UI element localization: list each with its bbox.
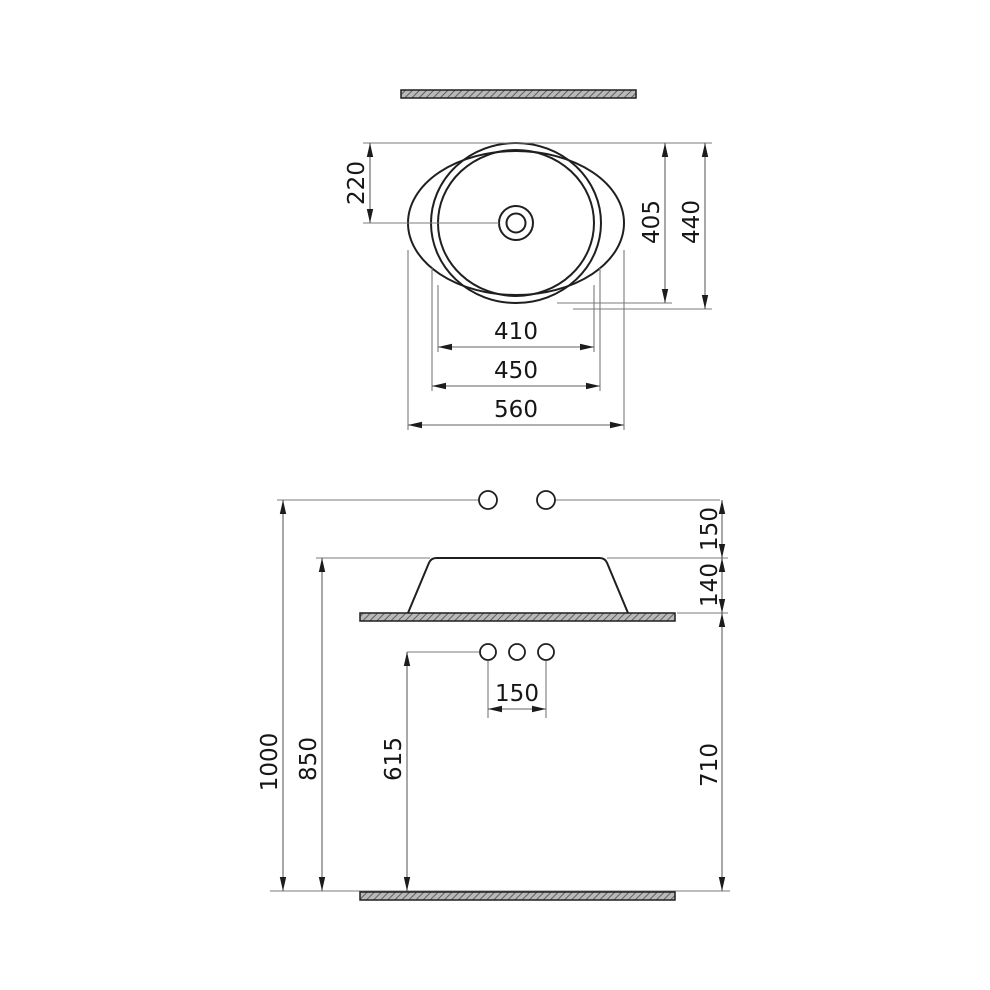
floor-section-bar <box>360 892 675 900</box>
side-view: 1000 850 615 150 140 710 150 <box>257 491 730 900</box>
supply-hole-circle <box>509 644 525 660</box>
dim-label-220: 220 <box>344 161 370 205</box>
counter-section-bar <box>360 613 675 621</box>
faucet-hole-circle <box>479 491 497 509</box>
dim-label-850: 850 <box>296 737 322 781</box>
technical-drawing-canvas: 220 405 440 410 450 560 <box>0 0 990 990</box>
top-view-extension-lines <box>363 143 712 430</box>
drain-outer-circle <box>499 206 533 240</box>
supply-hole-circle <box>480 644 496 660</box>
dim-label-615: 615 <box>381 737 407 781</box>
dim-label-140: 140 <box>697 563 723 607</box>
dim-label-450: 450 <box>494 358 538 384</box>
dim-label-150-top: 150 <box>697 507 723 551</box>
wall-section-bar <box>401 90 636 98</box>
dim-label-560: 560 <box>494 397 538 423</box>
technical-drawing-page: 220 405 440 410 450 560 <box>0 0 990 990</box>
supply-hole-circle <box>538 644 554 660</box>
dim-label-1000: 1000 <box>257 733 283 792</box>
drain-inner-circle <box>507 214 526 233</box>
dim-label-405: 405 <box>639 200 665 244</box>
dim-label-150-holes: 150 <box>495 681 539 707</box>
basin-profile <box>408 558 628 613</box>
dim-label-410: 410 <box>494 319 538 345</box>
dim-label-440: 440 <box>679 200 705 244</box>
dim-label-710: 710 <box>697 743 723 787</box>
faucet-hole-circle <box>537 491 555 509</box>
top-view: 220 405 440 410 450 560 <box>344 90 712 430</box>
